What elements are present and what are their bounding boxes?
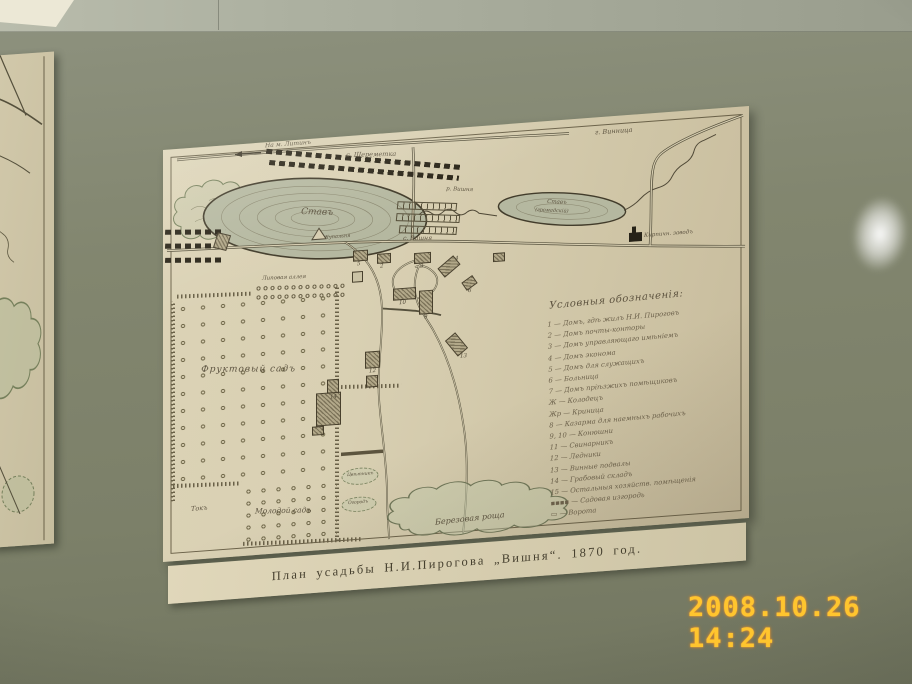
building (414, 252, 431, 264)
building (353, 250, 368, 262)
river-label: р. Вишня (446, 187, 474, 193)
orchard-trees (173, 289, 335, 493)
village-houses-row (165, 258, 223, 263)
building (493, 252, 505, 262)
village-label-sheremetka: с. Шереметка (346, 151, 396, 159)
building-number: 14 (330, 394, 337, 401)
young-orchard-label: Молодой садъ (255, 506, 312, 515)
frame-corner-sliver (0, 0, 74, 27)
adjacent-framed-map (0, 52, 54, 548)
building (377, 253, 391, 264)
map-legend: Условныя обозначенія: 1 — Домъ, гдѣ жилъ… (547, 283, 747, 521)
building (393, 287, 416, 301)
threshing-floor-label: Токъ (191, 505, 207, 513)
orchard-label: Фруктовый садъ (201, 365, 297, 375)
building-number: 12 (369, 368, 376, 375)
wall-seam-line (218, 0, 219, 30)
building (419, 290, 433, 315)
museum-wall-photo: 1 2 3 4 5 6 9 10 12 13 14 На м. Литинъ с… (0, 0, 912, 684)
pond-label: Ставъ (301, 208, 334, 218)
well-structure (352, 271, 363, 283)
river-east (624, 134, 716, 210)
village-label-vishnya: с. Вишня (403, 236, 432, 242)
building-number: 13 (460, 353, 467, 360)
building-number: 2 (380, 263, 384, 269)
birch-grove-cloud (388, 473, 568, 540)
wall-top-band (0, 0, 912, 32)
building-number: 5 (357, 261, 361, 267)
building (365, 351, 380, 369)
flash-glare (847, 192, 912, 275)
alley-bar (341, 449, 383, 456)
building-number: 1 (321, 426, 325, 432)
building-number: 4 (455, 256, 459, 262)
pirogov-house (316, 392, 341, 427)
building-number: 10 (399, 300, 406, 307)
building (366, 375, 378, 388)
vishnya-houses-row (399, 225, 458, 235)
building-number: 6 (468, 288, 472, 294)
forest-outline (0, 296, 41, 401)
estate-map: 1 2 3 4 5 6 9 10 12 13 14 На м. Литинъ с… (163, 106, 749, 562)
brick-factory-icon (629, 226, 642, 242)
building-number: 9 (424, 314, 428, 320)
village-pond-label: Ставъ (547, 200, 567, 206)
building-number: 3 (420, 263, 424, 269)
camera-timestamp: 2008.10.26 14:24 (688, 592, 912, 654)
adjacent-map-drawing (0, 52, 54, 548)
